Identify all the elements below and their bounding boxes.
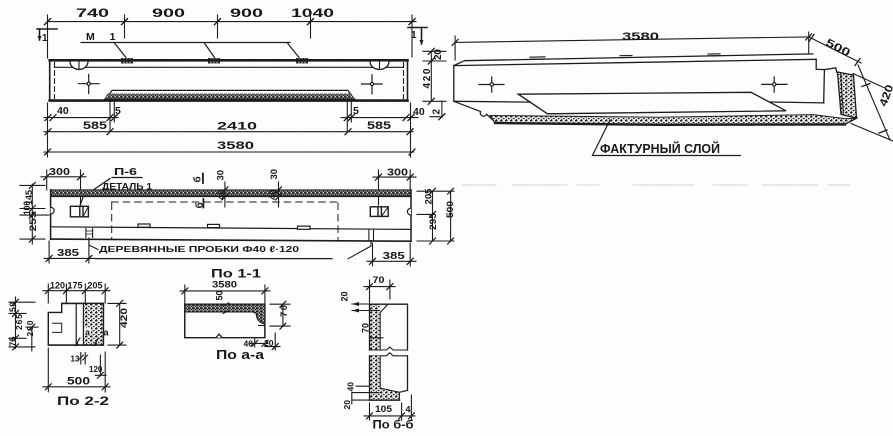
- svg-text:3580: 3580: [217, 140, 254, 152]
- svg-text:30: 30: [216, 170, 227, 181]
- svg-text:4: 4: [406, 405, 411, 415]
- svg-text:б: б: [192, 176, 204, 182]
- svg-text:1: 1: [411, 30, 417, 41]
- svg-text:50: 50: [8, 302, 18, 312]
- svg-text:20: 20: [433, 49, 444, 60]
- svg-text:200: 200: [25, 320, 35, 336]
- svg-text:585: 585: [367, 120, 391, 132]
- svg-text:13: 13: [71, 355, 80, 364]
- svg-text:ФАКТУРНЫЙ СЛОЙ: ФАКТУРНЫЙ СЛОЙ: [600, 141, 720, 156]
- svg-text:30: 30: [269, 169, 280, 180]
- svg-text:5: 5: [115, 105, 121, 117]
- svg-text:20: 20: [264, 338, 274, 348]
- svg-text:20: 20: [342, 400, 352, 410]
- svg-text:120: 120: [50, 280, 65, 291]
- svg-text:3580: 3580: [212, 280, 237, 291]
- svg-text:255: 255: [28, 211, 39, 232]
- svg-text:1040: 1040: [291, 8, 334, 20]
- svg-text:385: 385: [57, 247, 79, 259]
- svg-text:40: 40: [217, 189, 228, 200]
- svg-text:295: 295: [428, 212, 439, 230]
- svg-text:740: 740: [76, 8, 109, 20]
- svg-text:120: 120: [89, 365, 103, 374]
- svg-text:70: 70: [279, 305, 290, 317]
- svg-text:2: 2: [432, 109, 443, 115]
- svg-text:2410: 2410: [217, 121, 257, 133]
- svg-text:б: б: [194, 202, 206, 208]
- svg-text:900: 900: [230, 8, 263, 20]
- svg-text:385: 385: [383, 250, 405, 262]
- svg-text:585: 585: [83, 120, 107, 132]
- svg-text:205: 205: [423, 188, 434, 205]
- svg-text:300: 300: [49, 166, 70, 178]
- svg-text:70: 70: [373, 275, 385, 286]
- svg-text:40: 40: [413, 106, 425, 118]
- svg-text:По б-б: По б-б: [373, 420, 414, 432]
- svg-text:По а-а: По а-а: [216, 348, 265, 362]
- svg-text:265: 265: [14, 314, 24, 330]
- svg-text:40: 40: [57, 105, 69, 117]
- svg-text:900: 900: [152, 8, 185, 20]
- svg-text:50: 50: [215, 290, 225, 300]
- svg-text:ДЕРЕВЯННЫЕ ПРОБКИ Ф40 ℓ·120: ДЕРЕВЯННЫЕ ПРОБКИ Ф40 ℓ·120: [99, 244, 299, 254]
- svg-text:3580: 3580: [622, 31, 659, 43]
- svg-text:40: 40: [268, 189, 279, 200]
- svg-text:70: 70: [361, 323, 371, 333]
- svg-text:75: 75: [7, 336, 17, 346]
- svg-text:300: 300: [387, 167, 408, 179]
- svg-text:420: 420: [119, 308, 130, 328]
- svg-text:20: 20: [340, 291, 350, 301]
- svg-text:205: 205: [88, 280, 104, 291]
- svg-text:105: 105: [375, 404, 392, 414]
- svg-text:500: 500: [445, 201, 456, 218]
- svg-text:М 1: М 1: [86, 31, 122, 43]
- svg-text:420: 420: [422, 68, 433, 88]
- svg-text:40: 40: [346, 382, 356, 392]
- svg-text:175: 175: [68, 280, 84, 291]
- svg-text:500: 500: [67, 376, 90, 388]
- svg-text:5: 5: [353, 105, 359, 117]
- svg-text:По 2-2: По 2-2: [57, 394, 109, 408]
- svg-text:П-6: П-6: [114, 167, 138, 178]
- svg-text:1: 1: [42, 33, 48, 44]
